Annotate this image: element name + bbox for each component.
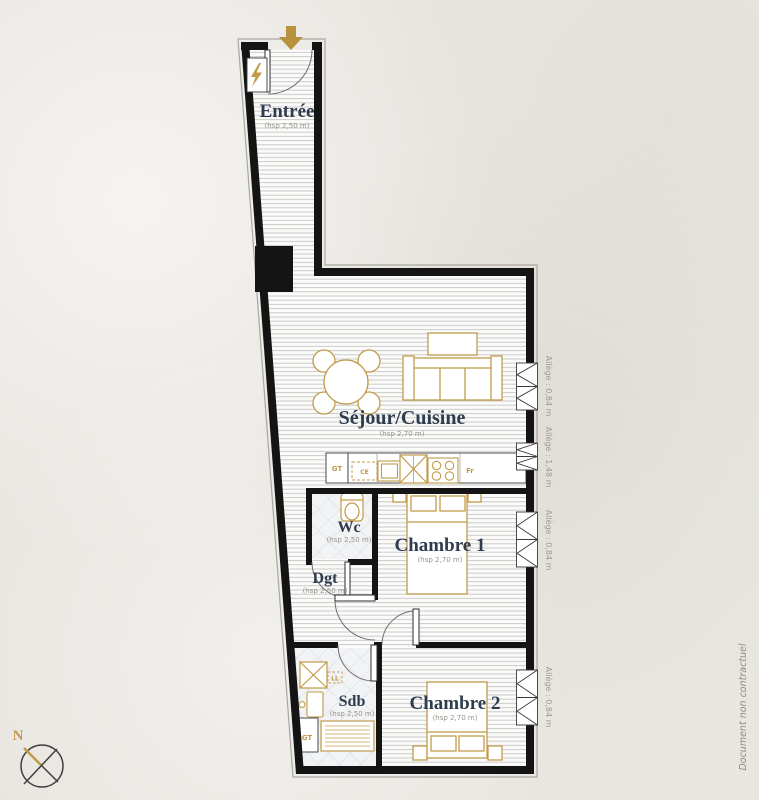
pillow [411,496,436,511]
nightstand [413,746,427,760]
doc-note: Document non contractuel [738,643,749,770]
room-chambre2-hsp: (hsp 2,70 m) [433,714,478,722]
room-sejour-label: Séjour/Cuisine [339,407,466,429]
pillow [431,736,456,751]
pillow [440,496,465,511]
room-chambre2-label: Chambre 2 [410,693,501,714]
window-4 [517,670,538,725]
fridge-label: Fr [466,467,474,475]
entrance-arrow-icon [279,26,303,50]
bathtub [321,721,374,751]
room-wc-hsp: (hsp 2,50 m) [327,536,372,544]
room-sdb-label: Sdb [339,693,366,710]
window-4-allege-label: Allège : 0,84 m [544,667,554,728]
room-wc-label: Wc [337,519,360,536]
sofa-armrest [491,356,502,400]
floor-plan: GT CE Fr LL [0,0,759,800]
room-dgt-hsp: (hsp 2,50 m) [303,587,348,595]
electrical-panel [247,58,267,92]
ll-label: LL [331,676,339,683]
stove [428,458,458,483]
sofa-armrest [403,356,414,400]
kitchen-counter: GT CE Fr [326,453,526,483]
room-entree-label: Entrée [260,101,315,122]
room-chambre1-hsp: (hsp 2,70 m) [418,556,463,564]
room-chambre1-label: Chambre 1 [395,535,486,556]
dining-table [324,360,368,404]
gt-kitchen-label: GT [332,465,343,473]
gt-sdb-label: GT [302,734,313,742]
ce-label: CE [360,469,369,476]
window-3-allege-label: Allège : 0,84 m [544,510,554,571]
north-label: N [13,728,24,744]
sofa-body [405,358,500,400]
window-1-allege-label: Allège : 0,84 m [544,356,554,417]
compass-icon [21,745,63,787]
coffee-table [428,333,477,355]
kitchen-sink [378,461,401,481]
window-2 [517,443,538,470]
window-2-allege-label: Allège : 1,48 m [544,427,554,488]
room-entree-hsp: (hsp 2,50 m) [265,122,310,130]
pillow [459,736,484,751]
toilet [341,493,363,521]
floor-plan-page: GT CE Fr LL [0,0,759,800]
dishwasher [400,455,427,483]
room-sdb-hsp: (hsp 2,50 m) [330,710,375,718]
window-1 [517,363,538,410]
window-3 [517,512,538,567]
washing-machine [300,662,327,688]
room-dgt-label: Dgt [313,570,339,587]
room-sejour-hsp: (hsp 2,70 m) [380,430,425,438]
nightstand [488,746,502,760]
